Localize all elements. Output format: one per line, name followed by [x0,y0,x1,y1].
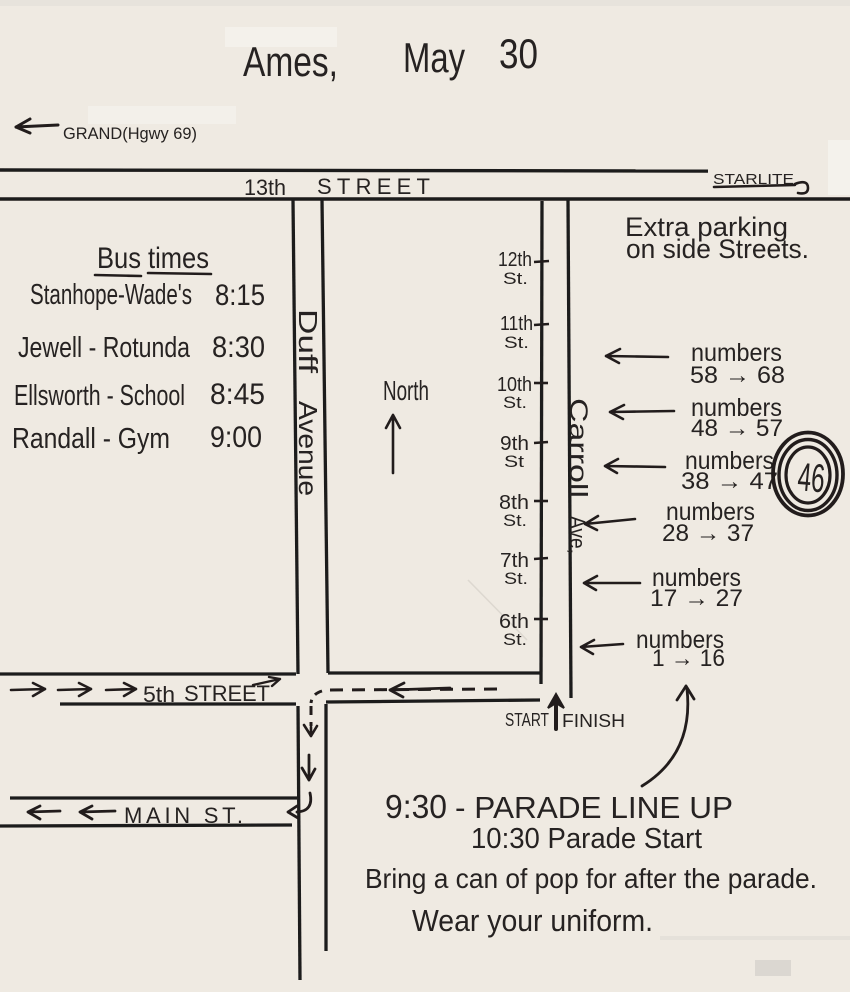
svg-text:8:45: 8:45 [210,378,265,411]
svg-text:St: St [504,452,524,471]
svg-text:GRAND(Hgwy 69): GRAND(Hgwy 69) [63,124,197,143]
svg-text:Avenue: Avenue [293,401,323,496]
svg-text:Ames,: Ames, [243,38,338,85]
svg-text:58 → 68: 58 → 68 [690,362,785,389]
svg-text:St.: St. [503,393,527,412]
svg-text:May: May [403,34,465,81]
svg-text:Carroll: Carroll [564,398,592,498]
svg-text:10:30 Parade Start: 10:30 Parade Start [471,823,702,855]
svg-text:- PARADE LINE UP: - PARADE LINE UP [455,790,733,825]
svg-text:30: 30 [499,30,538,77]
svg-text:8:30: 8:30 [212,331,265,364]
svg-text:St.: St. [503,630,527,649]
svg-text:Ave,: Ave, [565,516,590,554]
svg-text:9:00: 9:00 [210,421,262,454]
svg-text:12th: 12th [498,249,532,271]
svg-text:28 → 37: 28 → 37 [662,520,754,547]
svg-text:13th: 13th [244,175,286,200]
svg-text:5th: 5th [143,682,175,707]
svg-text:Bus times: Bus times [97,242,209,275]
svg-text:38 → 47: 38 → 47 [681,468,778,495]
svg-text:Jewell - Rotunda: Jewell - Rotunda [18,332,191,364]
svg-text:1 → 16: 1 → 16 [652,645,725,672]
svg-text:St.: St. [504,569,528,588]
svg-text:MAIN ST.: MAIN ST. [124,803,243,828]
svg-text:St.: St. [504,333,529,352]
svg-text:Ellsworth - School: Ellsworth - School [14,380,185,412]
svg-text:9:30: 9:30 [385,788,447,825]
svg-text:8:15: 8:15 [215,279,265,312]
svg-text:Duff: Duff [293,309,323,374]
svg-text:St.: St. [503,511,527,530]
svg-text:48 → 57: 48 → 57 [691,415,783,442]
svg-text:Bring a can of pop for after t: Bring a can of pop for after the parade. [365,863,817,894]
svg-text:11th: 11th [500,313,533,335]
svg-text:Wear your uniform.: Wear your uniform. [412,903,653,938]
svg-text:FINISH: FINISH [562,710,625,731]
svg-text:Stanhope-Wade's: Stanhope-Wade's [30,279,192,311]
svg-text:on side Streets.: on side Streets. [626,234,809,264]
svg-text:St.: St. [503,269,528,288]
svg-text:START: START [505,709,549,730]
svg-text:46: 46 [796,455,827,501]
svg-text:North: North [383,375,429,406]
svg-text:17 → 27: 17 → 27 [650,585,743,612]
svg-text:Randall - Gym: Randall - Gym [12,423,170,455]
